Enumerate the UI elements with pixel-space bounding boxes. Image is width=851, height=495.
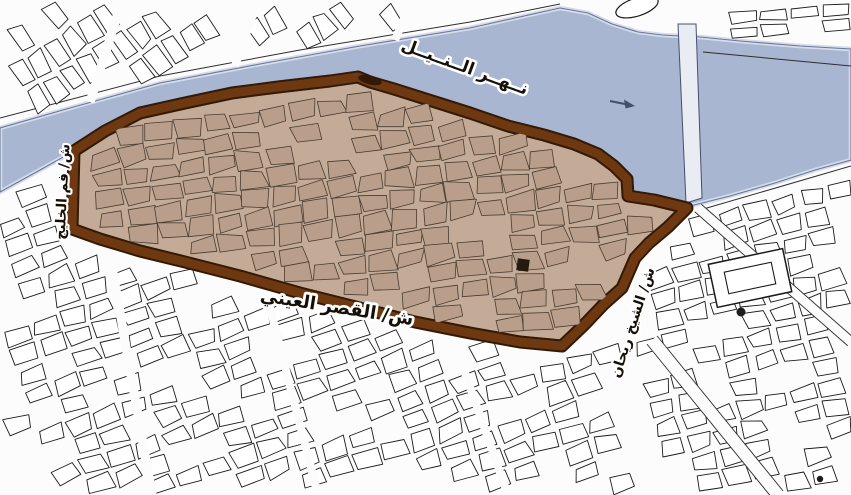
map-canvas: نــهــر الــنــيــلش/ القصر العينيش/ فم … [0, 0, 851, 495]
map-figure: نــهــر الــنــيــلش/ القصر العينيش/ فم … [0, 0, 851, 495]
